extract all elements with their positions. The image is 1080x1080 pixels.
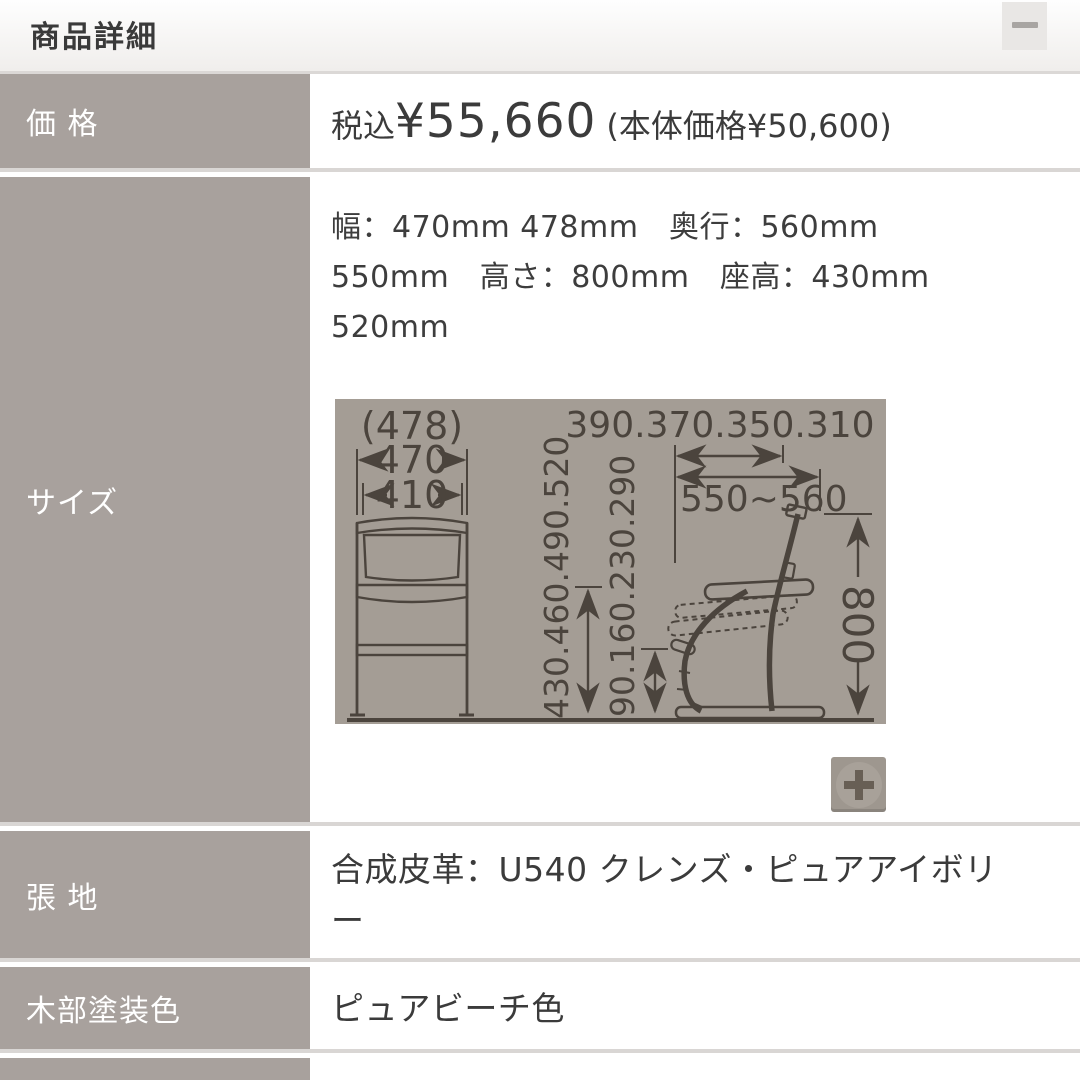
table-row-wood-color: 木部塗装色 ピュアビーチ色 — [0, 967, 1080, 1053]
dim-total-height: 800 — [833, 585, 882, 665]
dim-footrest-heights: 90.160.230.290 — [603, 455, 642, 717]
column-divider — [310, 74, 318, 168]
column-divider — [310, 177, 318, 822]
chair-dimension-diagram: (478) 470 410 430.460.490.520 90.160.230… — [335, 399, 886, 724]
wood-color-row-label: 木部塗装色 — [0, 967, 310, 1049]
size-row-label: サイズ — [0, 177, 310, 822]
dim-front-inner-width: 410 — [376, 473, 449, 517]
table-row-partial — [0, 1058, 1080, 1080]
wood-color-row-value: ピュアビーチ色 — [318, 967, 1080, 1049]
size-text-line: 520mm — [331, 303, 1050, 353]
upholstery-row-value: 合成皮革：U540 クレンズ・ピュアアイボリー — [318, 831, 1080, 958]
collapse-section-button[interactable] — [1002, 2, 1047, 50]
table-row-price: 価 格 税込¥55,660 (本体価格¥50,600) — [0, 74, 1080, 172]
column-divider — [310, 831, 318, 958]
column-divider — [310, 967, 318, 1049]
panel-header: 商品詳細 — [0, 0, 1080, 74]
product-spec-table: 価 格 税込¥55,660 (本体価格¥50,600) サイズ 幅：470mm … — [0, 74, 1080, 1080]
price-tax-prefix: 税込 — [331, 101, 395, 147]
upholstery-row-label: 張 地 — [0, 831, 310, 958]
partial-row-label — [0, 1058, 310, 1080]
dim-seat-depths: 390.370.350.310 — [565, 405, 874, 446]
partial-row-value — [318, 1058, 1080, 1080]
dimension-diagram-wrap: (478) 470 410 430.460.490.520 90.160.230… — [335, 399, 886, 812]
size-text-line: 550mm 高さ：800mm 座高：430mm — [331, 253, 1050, 303]
price-base-note: (本体価格¥50,600) — [606, 101, 891, 147]
dim-depth-range: 550~560 — [680, 479, 848, 520]
zoom-in-button[interactable] — [831, 757, 886, 812]
panel-title: 商品詳細 — [30, 12, 158, 56]
size-text-line: 幅：470mm 478mm 奥行：560mm — [331, 203, 1050, 253]
size-row-value: 幅：470mm 478mm 奥行：560mm 550mm 高さ：800mm 座高… — [318, 177, 1080, 822]
table-row-upholstery: 張 地 合成皮革：U540 クレンズ・ピュアアイボリー — [0, 831, 1080, 962]
minus-icon — [1012, 22, 1038, 28]
plus-icon — [855, 770, 863, 800]
price-row-label: 価 格 — [0, 74, 310, 168]
dim-seat-heights: 430.460.490.520 — [537, 436, 576, 719]
price-row-value: 税込¥55,660 (本体価格¥50,600) — [318, 74, 1080, 168]
table-row-size: サイズ 幅：470mm 478mm 奥行：560mm 550mm 高さ：800m… — [0, 177, 1080, 826]
column-divider — [310, 1058, 318, 1080]
price-amount: ¥55,660 — [395, 94, 596, 149]
